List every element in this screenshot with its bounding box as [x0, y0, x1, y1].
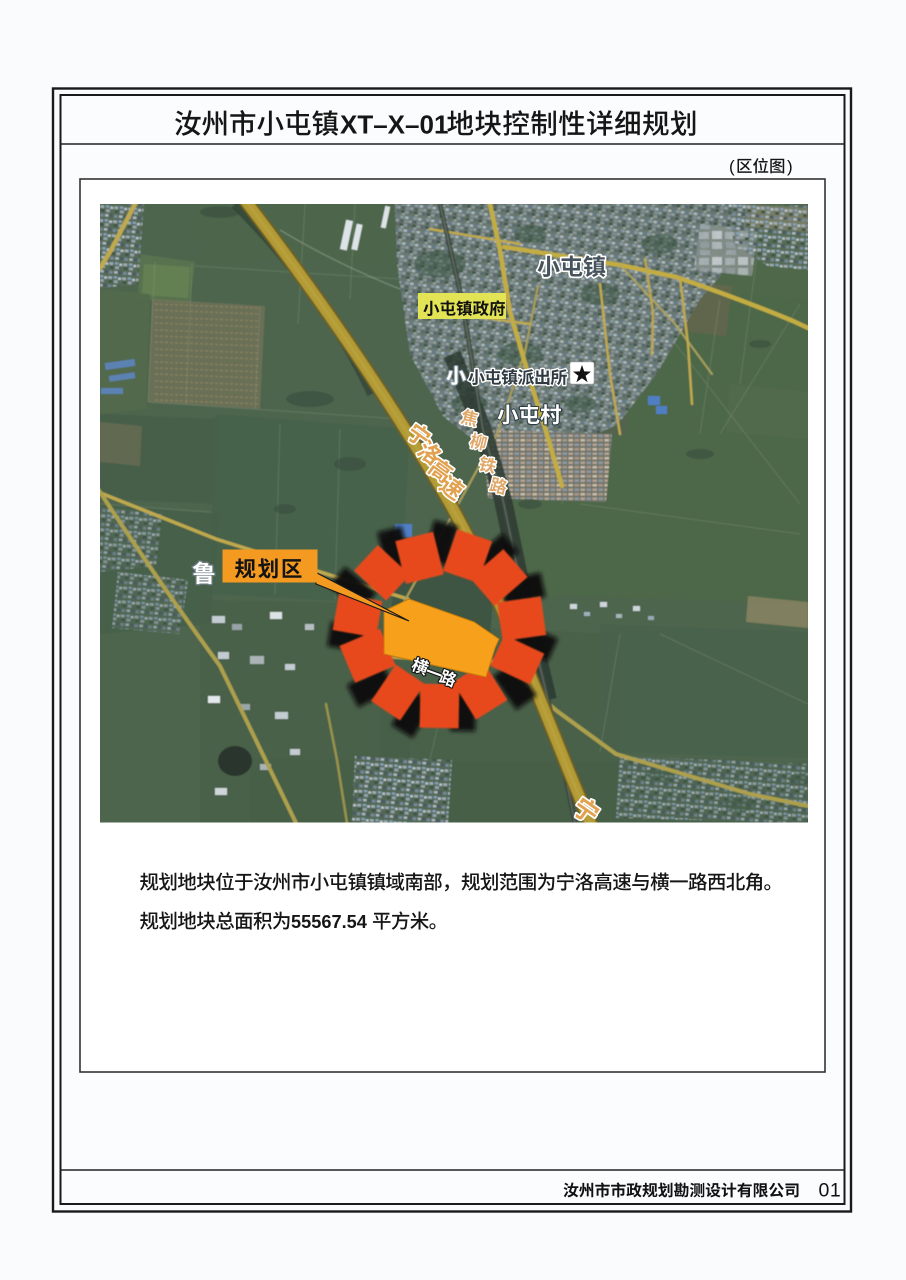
svg-text:XT–X–01: XT–X–01 — [340, 110, 448, 140]
svg-text:(: ( — [729, 157, 735, 176]
svg-text:): ) — [787, 157, 793, 176]
svg-text:55567.54: 55567.54 — [291, 912, 368, 932]
svg-text:01: 01 — [819, 1180, 842, 1202]
